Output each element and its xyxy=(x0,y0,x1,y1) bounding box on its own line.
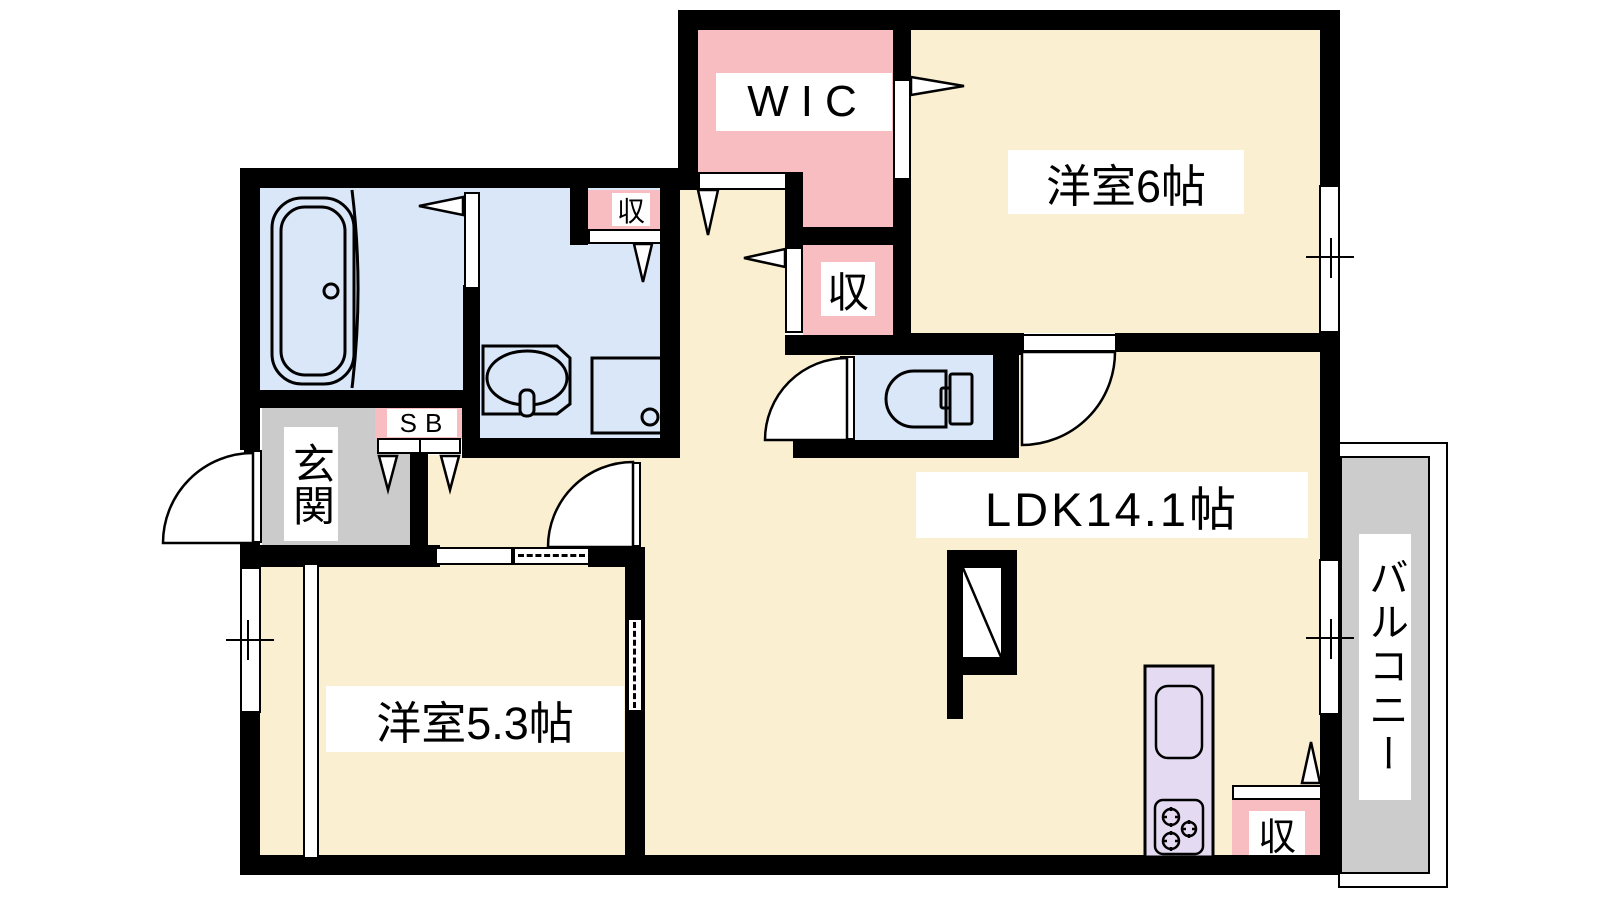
wall xyxy=(1320,715,1340,875)
entrance-door-arc xyxy=(163,453,253,543)
wall xyxy=(893,333,1024,352)
label-storage-hall: 収 xyxy=(821,262,875,316)
bedroom53-partition-line xyxy=(303,565,319,857)
label-balcony: バルコニー xyxy=(1359,534,1411,800)
wall xyxy=(893,30,911,79)
wall xyxy=(678,10,698,190)
wall xyxy=(463,285,480,392)
window-tick xyxy=(226,639,274,641)
wall xyxy=(240,390,480,408)
entrance-door-leaf xyxy=(244,450,262,543)
wall xyxy=(240,168,680,188)
hallway xyxy=(420,455,660,547)
wall xyxy=(678,10,1340,30)
opening-marker xyxy=(961,566,1003,659)
floor-plan: WIC 洋室6帖 LDK14.1帖 洋室5.3帖 玄関 バルコニー SB 収 収… xyxy=(0,0,1600,900)
wall xyxy=(1320,333,1340,559)
window-tick xyxy=(1330,238,1332,278)
wall xyxy=(588,547,645,567)
label-storage-kitchen: 収 xyxy=(1249,811,1305,855)
wall xyxy=(803,227,893,245)
wall xyxy=(947,675,963,719)
hall-door-leaf xyxy=(625,462,641,547)
sliding-door-bedroom53 xyxy=(435,547,513,565)
wall xyxy=(570,188,588,245)
bedroom6-wic-door-leaf xyxy=(893,79,911,180)
window-tick xyxy=(247,620,249,660)
sliding-door-dashes xyxy=(518,554,585,557)
label-wic: WIC xyxy=(716,73,892,131)
wall xyxy=(410,438,428,547)
label-entrance: 玄関 xyxy=(284,427,338,541)
wall xyxy=(893,180,911,335)
wall xyxy=(660,188,680,458)
wall xyxy=(793,440,1019,458)
label-storage-washroom: 収 xyxy=(612,193,650,226)
wall xyxy=(625,567,645,857)
wall xyxy=(240,711,260,857)
bath-door-leaf xyxy=(464,192,480,289)
closet-hall-door-leaf xyxy=(785,247,803,333)
wall xyxy=(462,438,680,458)
wall xyxy=(785,190,803,247)
label-bedroom6: 洋室6帖 xyxy=(1008,150,1244,214)
label-ldk: LDK14.1帖 xyxy=(916,472,1308,538)
wic-folding-door xyxy=(698,172,787,190)
wall xyxy=(1115,333,1322,352)
label-shoebox: SB xyxy=(387,409,457,437)
closet-washroom-door xyxy=(588,229,662,244)
wall xyxy=(1320,10,1340,185)
toilet-door-leaf xyxy=(840,356,855,440)
corridor xyxy=(680,188,785,455)
label-bedroom53: 洋室5.3帖 xyxy=(326,686,624,752)
room-bath xyxy=(260,188,463,390)
window-tick xyxy=(1330,619,1332,659)
wall xyxy=(993,352,1019,444)
room-toilet xyxy=(855,352,995,442)
ldk-door-leaf xyxy=(1022,334,1117,352)
closet-kitchen-folding-door xyxy=(1232,785,1322,800)
wall xyxy=(240,855,1340,875)
closet-slide-dashes xyxy=(633,622,636,708)
wall xyxy=(240,545,440,567)
shoebox-door-divider xyxy=(419,439,421,453)
